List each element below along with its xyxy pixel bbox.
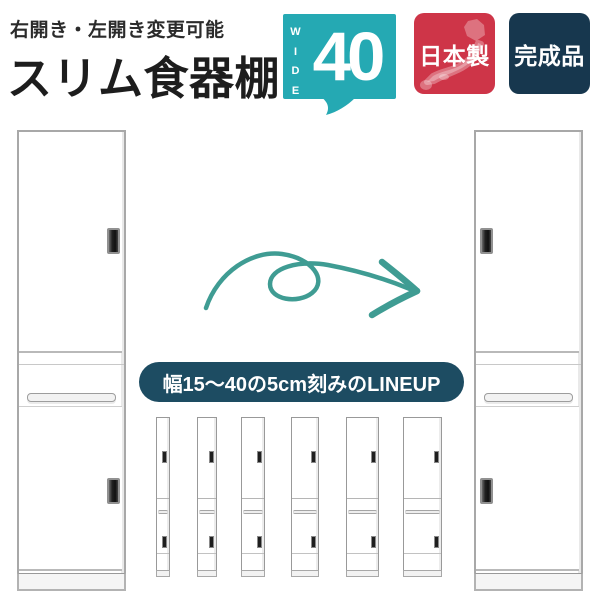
door-handle [257,451,262,463]
door-line [198,553,216,554]
wide-40-bubble: W I D E 40 [283,14,396,99]
cabinet-base [474,573,583,591]
made-in-japan-badge: 日本製 [414,13,495,94]
speech-bubble-tail-icon [321,97,359,117]
door-handle [480,478,493,504]
wide-letter: E [292,86,299,97]
lineup-cabinet-15 [156,417,170,571]
shelf-divider [347,498,378,499]
slide-tray [199,510,215,514]
slide-tray [27,393,116,402]
cabinet-base [197,570,217,577]
door-line [242,553,264,554]
slide-tray [158,510,168,514]
shelf-divider [292,498,318,499]
door-handle [107,478,120,504]
door-handle [371,536,376,548]
finished-product-badge: 完成品 [509,13,590,94]
door-line [347,553,378,554]
lineup-cabinet-40 [403,417,442,571]
door-line [157,553,169,554]
door-handle [257,536,262,548]
page-title: スリム食器棚 [7,42,280,107]
cabinet-base [403,570,442,577]
cabinet-right [474,130,583,575]
door-line [292,553,318,554]
door-handle [209,451,214,463]
shelf-divider [242,498,264,499]
door-handle [434,451,439,463]
cabinet-base [241,570,265,577]
slide-tray [293,510,317,514]
cabinet-base [346,570,379,577]
subtitle: 右開き・左開き変更可能 [10,15,225,42]
door-line [404,553,441,554]
lineup-cabinet-25 [241,417,265,571]
door-handle [209,536,214,548]
wide-letter: D [292,66,300,77]
slide-tray [348,510,377,514]
slide-tray [405,510,440,514]
door-handle [162,451,167,463]
cabinet-left [17,130,126,575]
door-handle [434,536,439,548]
shelf-divider [198,498,216,499]
width-value: 40 [300,14,394,99]
slide-tray [484,393,573,402]
lineup-cabinet-20 [197,417,217,571]
product-banner: 右開き・左開き変更可能 スリム食器棚 W I D E 40 日本製 完成品 [0,0,600,600]
door-handle [107,228,120,254]
lineup-cabinet-35 [346,417,379,571]
door-handle [480,228,493,254]
made-in-japan-label: 日本製 [419,37,490,71]
door-handle [371,451,376,463]
finished-product-label: 完成品 [514,37,585,71]
shelf-divider [476,364,581,365]
lineup-cabinet-30 [291,417,319,571]
lineup-banner-text: 幅15〜40の5cm刻みのLINEUP [163,368,441,397]
shelf-divider [404,498,441,499]
door-handle [311,451,316,463]
cabinet-base [17,573,126,591]
wide-letter: I [294,47,297,58]
slide-tray [243,510,263,514]
door-handle [311,536,316,548]
swirl-arrow-icon [160,230,450,360]
shelf-divider [157,498,169,499]
cabinet-base [156,570,170,577]
cabinet-base [291,570,319,577]
door-handle [162,536,167,548]
lineup-banner: 幅15〜40の5cm刻みのLINEUP [139,362,464,402]
shelf-divider [19,364,124,365]
